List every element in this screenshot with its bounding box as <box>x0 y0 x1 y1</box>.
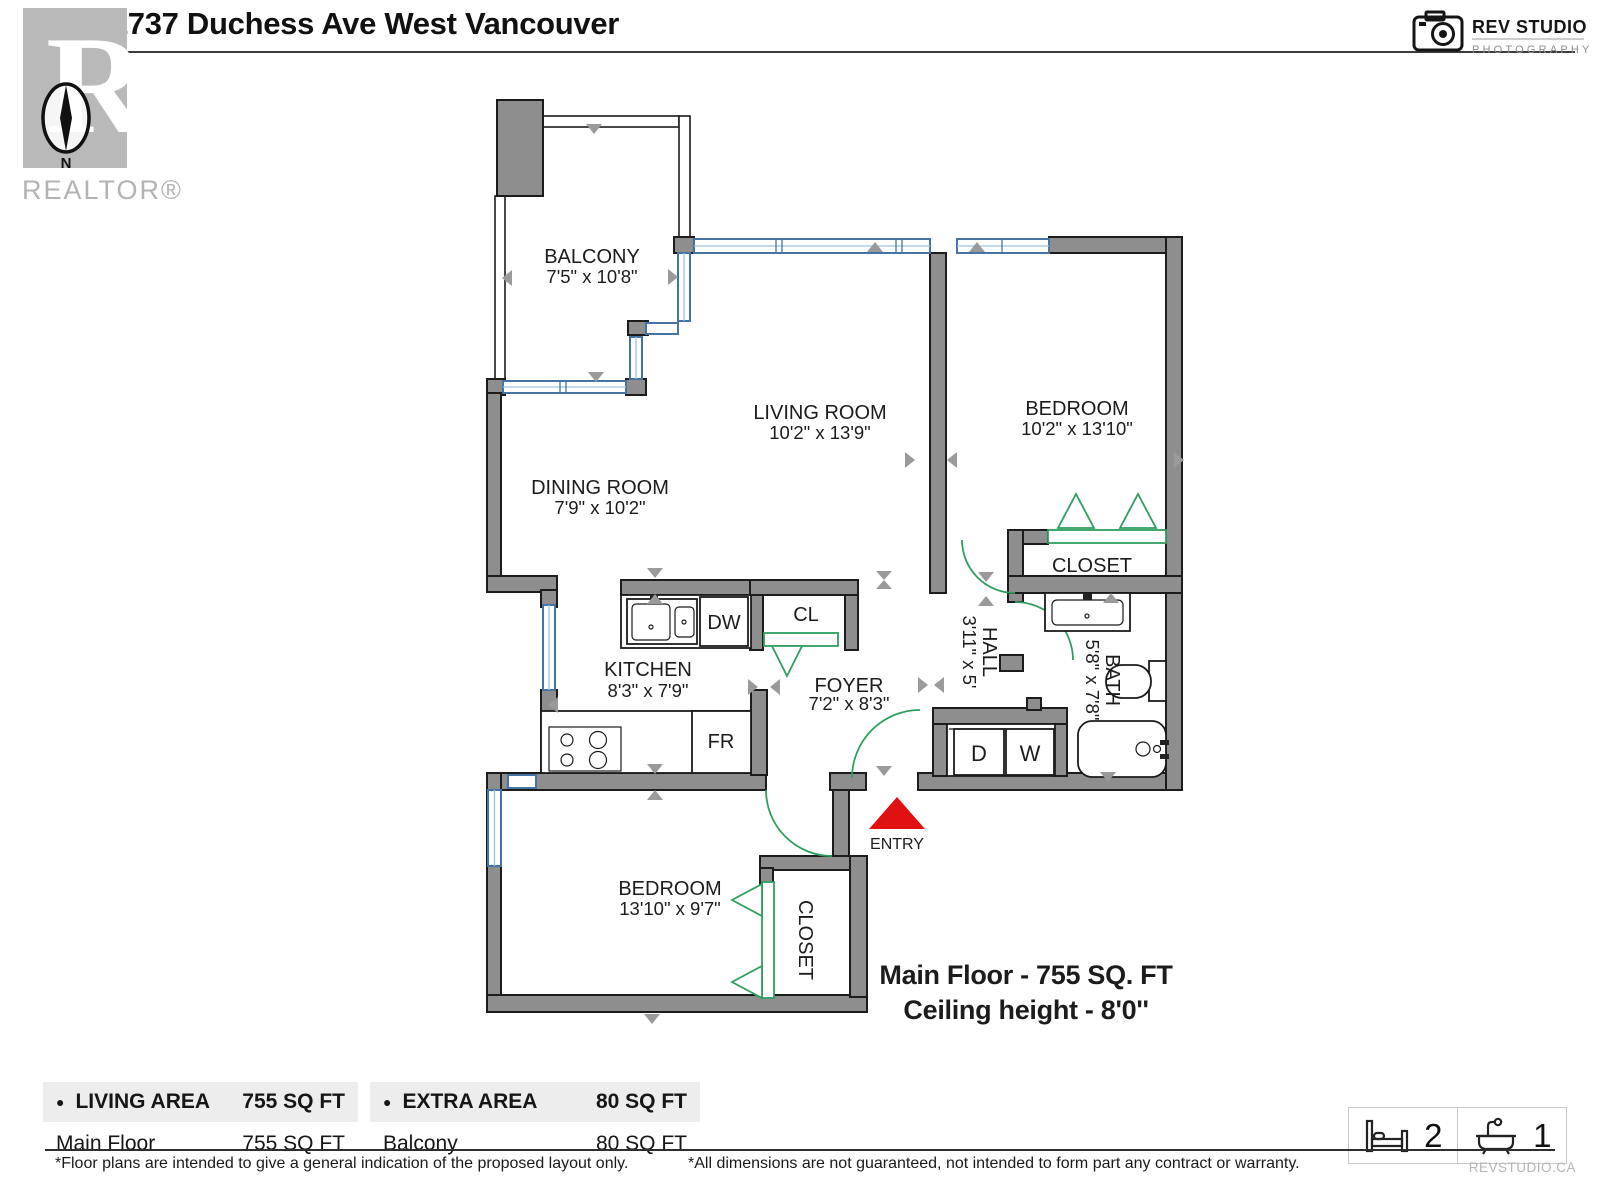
bed-bath-stats: 2 1 <box>1348 1107 1567 1164</box>
row-label: Main Floor <box>56 1132 155 1156</box>
dining-room-label: DINING ROOM <box>531 477 669 499</box>
row-value: 80 SQ FT <box>596 1132 687 1156</box>
site-credit: REVSTUDIO.CA <box>1469 1160 1576 1175</box>
closet2-sliding-door <box>732 882 774 998</box>
fridge-label: FR <box>708 731 735 753</box>
dryer-label: D <box>971 741 987 766</box>
cl-closet-door <box>764 633 838 676</box>
extra-area-header: ● EXTRA AREA 80 SQ FT <box>370 1082 700 1122</box>
plan-summary: Main Floor - 755 SQ. FT Ceiling height -… <box>879 960 1173 1025</box>
dining-room-dims: 7'9" x 10'2" <box>554 497 645 518</box>
window <box>694 239 930 253</box>
summary-area: Main Floor - 755 SQ. FT <box>879 960 1173 990</box>
extra-area-title: EXTRA AREA <box>402 1090 537 1114</box>
living-area-total: 755 SQ FT <box>242 1090 345 1114</box>
bath-dims: 5'8" x 7'8" <box>1082 640 1103 721</box>
balcony-dims: 7'5" x 10'8" <box>546 266 637 287</box>
living-area-title: LIVING AREA <box>75 1090 210 1114</box>
entry-label: ENTRY <box>870 836 924 853</box>
entry-marker: ENTRY <box>869 797 925 853</box>
kitchen-dims: 8'3" x 7'9" <box>608 680 689 701</box>
bedroom1-label: BEDROOM <box>1025 398 1128 420</box>
row-label: Balcony <box>383 1132 458 1156</box>
cl-label: CL <box>793 604 819 626</box>
summary-ceiling: Ceiling height - 8'0'' <box>903 995 1148 1025</box>
bullet-icon: ● <box>56 1094 64 1110</box>
floor-plan: ENTRY BALCONY 7'5" x 10'8" LIVING ROOM 1… <box>0 0 1600 1200</box>
foyer-dims: 7'2" x 8'3" <box>809 693 890 714</box>
balcony-label: BALCONY <box>544 246 640 268</box>
footnote-left: *Floor plans are intended to give a gene… <box>55 1155 628 1173</box>
closet1-sliding-door <box>1048 494 1166 543</box>
dishwasher-label: DW <box>707 612 740 634</box>
bath-label: BATH <box>1101 654 1123 706</box>
closet2-label: CLOSET <box>794 900 816 980</box>
bedroom2-door-arc <box>766 790 832 856</box>
living-area-header: ● LIVING AREA 755 SQ FT <box>43 1082 358 1122</box>
bedroom1-dims: 10'2" x 13'10" <box>1021 418 1133 439</box>
window <box>503 381 626 393</box>
footer-divider <box>45 1149 1555 1151</box>
living-area-table: ● LIVING AREA 755 SQ FT Main Floor 755 S… <box>43 1082 358 1156</box>
entry-arrow-icon <box>869 797 925 829</box>
closet1-label: CLOSET <box>1052 555 1132 577</box>
bath-stat: 1 <box>1457 1108 1566 1163</box>
window <box>543 605 555 690</box>
living-room-dims: 10'2" x 13'9" <box>769 422 870 443</box>
hall-dims: 3'11" x 5' <box>959 616 980 689</box>
row-value: 755 SQ FT <box>242 1132 345 1156</box>
window <box>630 253 690 379</box>
bedroom2-label: BEDROOM <box>618 878 721 900</box>
bullet-icon: ● <box>383 1094 391 1110</box>
bed-stat: 2 <box>1349 1108 1457 1163</box>
footnote-right: *All dimensions are not guaranteed, not … <box>688 1155 1300 1173</box>
extra-area-total: 80 SQ FT <box>596 1090 687 1114</box>
washer-label: W <box>1020 741 1041 766</box>
hall-label: HALL <box>978 627 1000 677</box>
bath-vanity <box>1045 593 1130 631</box>
kitchen-label: KITCHEN <box>604 659 692 681</box>
bedroom2-dims: 13'10" x 9'7" <box>619 898 720 919</box>
bathtub <box>1078 721 1169 777</box>
wall-segment <box>497 100 543 196</box>
extra-area-table: ● EXTRA AREA 80 SQ FT Balcony 80 SQ FT <box>370 1082 700 1156</box>
living-room-label: LIVING ROOM <box>753 402 886 424</box>
